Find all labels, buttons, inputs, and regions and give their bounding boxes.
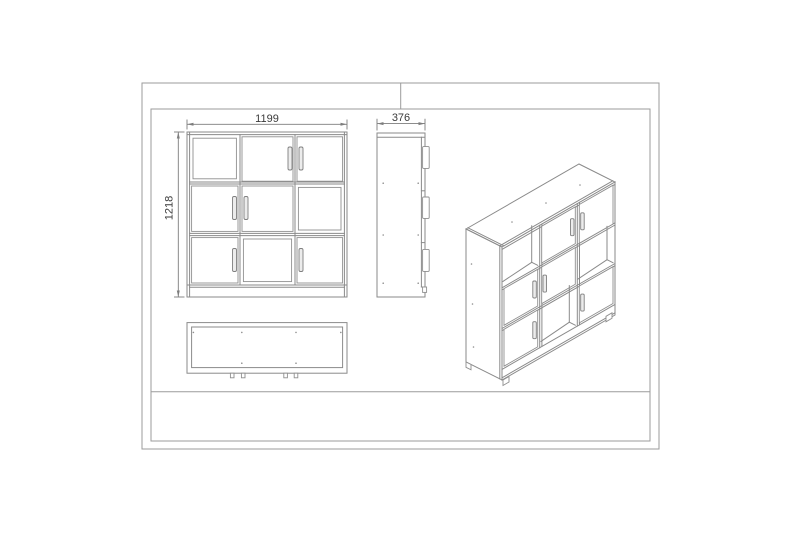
front-width-label: 1199 [255, 113, 279, 125]
top-view-foot-1 [230, 373, 234, 378]
side-view [377, 133, 429, 297]
front-door-r3c1 [192, 238, 238, 283]
front-door-r1c3 [297, 137, 343, 181]
top-view-inner-panel [192, 327, 343, 368]
front-handle-r2c2 [244, 197, 248, 220]
side-door-edge-bottom [423, 249, 430, 271]
cabinet-drawing-svg: 1199 1218 376 [0, 0, 800, 533]
front-handle-r1c3 [299, 147, 303, 170]
side-door-edge-top [423, 147, 430, 169]
iso-handle-r3c3 [581, 294, 585, 311]
front-door-r1c2 [242, 137, 293, 181]
front-open-compartment-r2c3 [298, 187, 341, 230]
side-view-foot [423, 287, 427, 292]
isometric-view [466, 164, 615, 386]
front-door-r2c1 [192, 186, 238, 231]
top-view-foot-4 [294, 373, 298, 378]
iso-handle-r1c2 [571, 219, 575, 236]
front-view [187, 132, 347, 297]
dimension-front-height: 1218 [164, 132, 185, 297]
top-view-foot-3 [284, 373, 288, 378]
iso-handle-r2c2 [543, 275, 547, 292]
front-door-r3c3 [297, 238, 343, 283]
front-handle-r3c1 [233, 249, 237, 272]
side-view-outline [377, 133, 425, 297]
front-height-label: 1218 [164, 196, 176, 220]
dimension-side-depth: 376 [377, 112, 425, 131]
front-handle-r2c1 [233, 197, 237, 220]
top-view-foot-2 [241, 373, 245, 378]
top-view [187, 323, 347, 378]
front-handle-r1c2 [288, 147, 292, 170]
iso-left-face [466, 229, 502, 380]
front-handle-r3c3 [299, 249, 303, 272]
technical-drawing-sheet: 1199 1218 376 [0, 0, 800, 533]
front-door-r2c2 [242, 186, 293, 231]
top-view-outline [187, 323, 347, 374]
front-open-compartment-r1c1 [193, 138, 236, 179]
iso-handle-r3c1 [533, 322, 537, 339]
dimension-front-width: 1199 [187, 113, 347, 130]
side-depth-label: 376 [392, 112, 410, 124]
side-door-edge-middle [423, 197, 430, 218]
front-open-compartment-r3c2 [243, 239, 291, 282]
iso-handle-r2c1 [533, 281, 537, 298]
iso-handle-r1c3 [581, 213, 585, 230]
